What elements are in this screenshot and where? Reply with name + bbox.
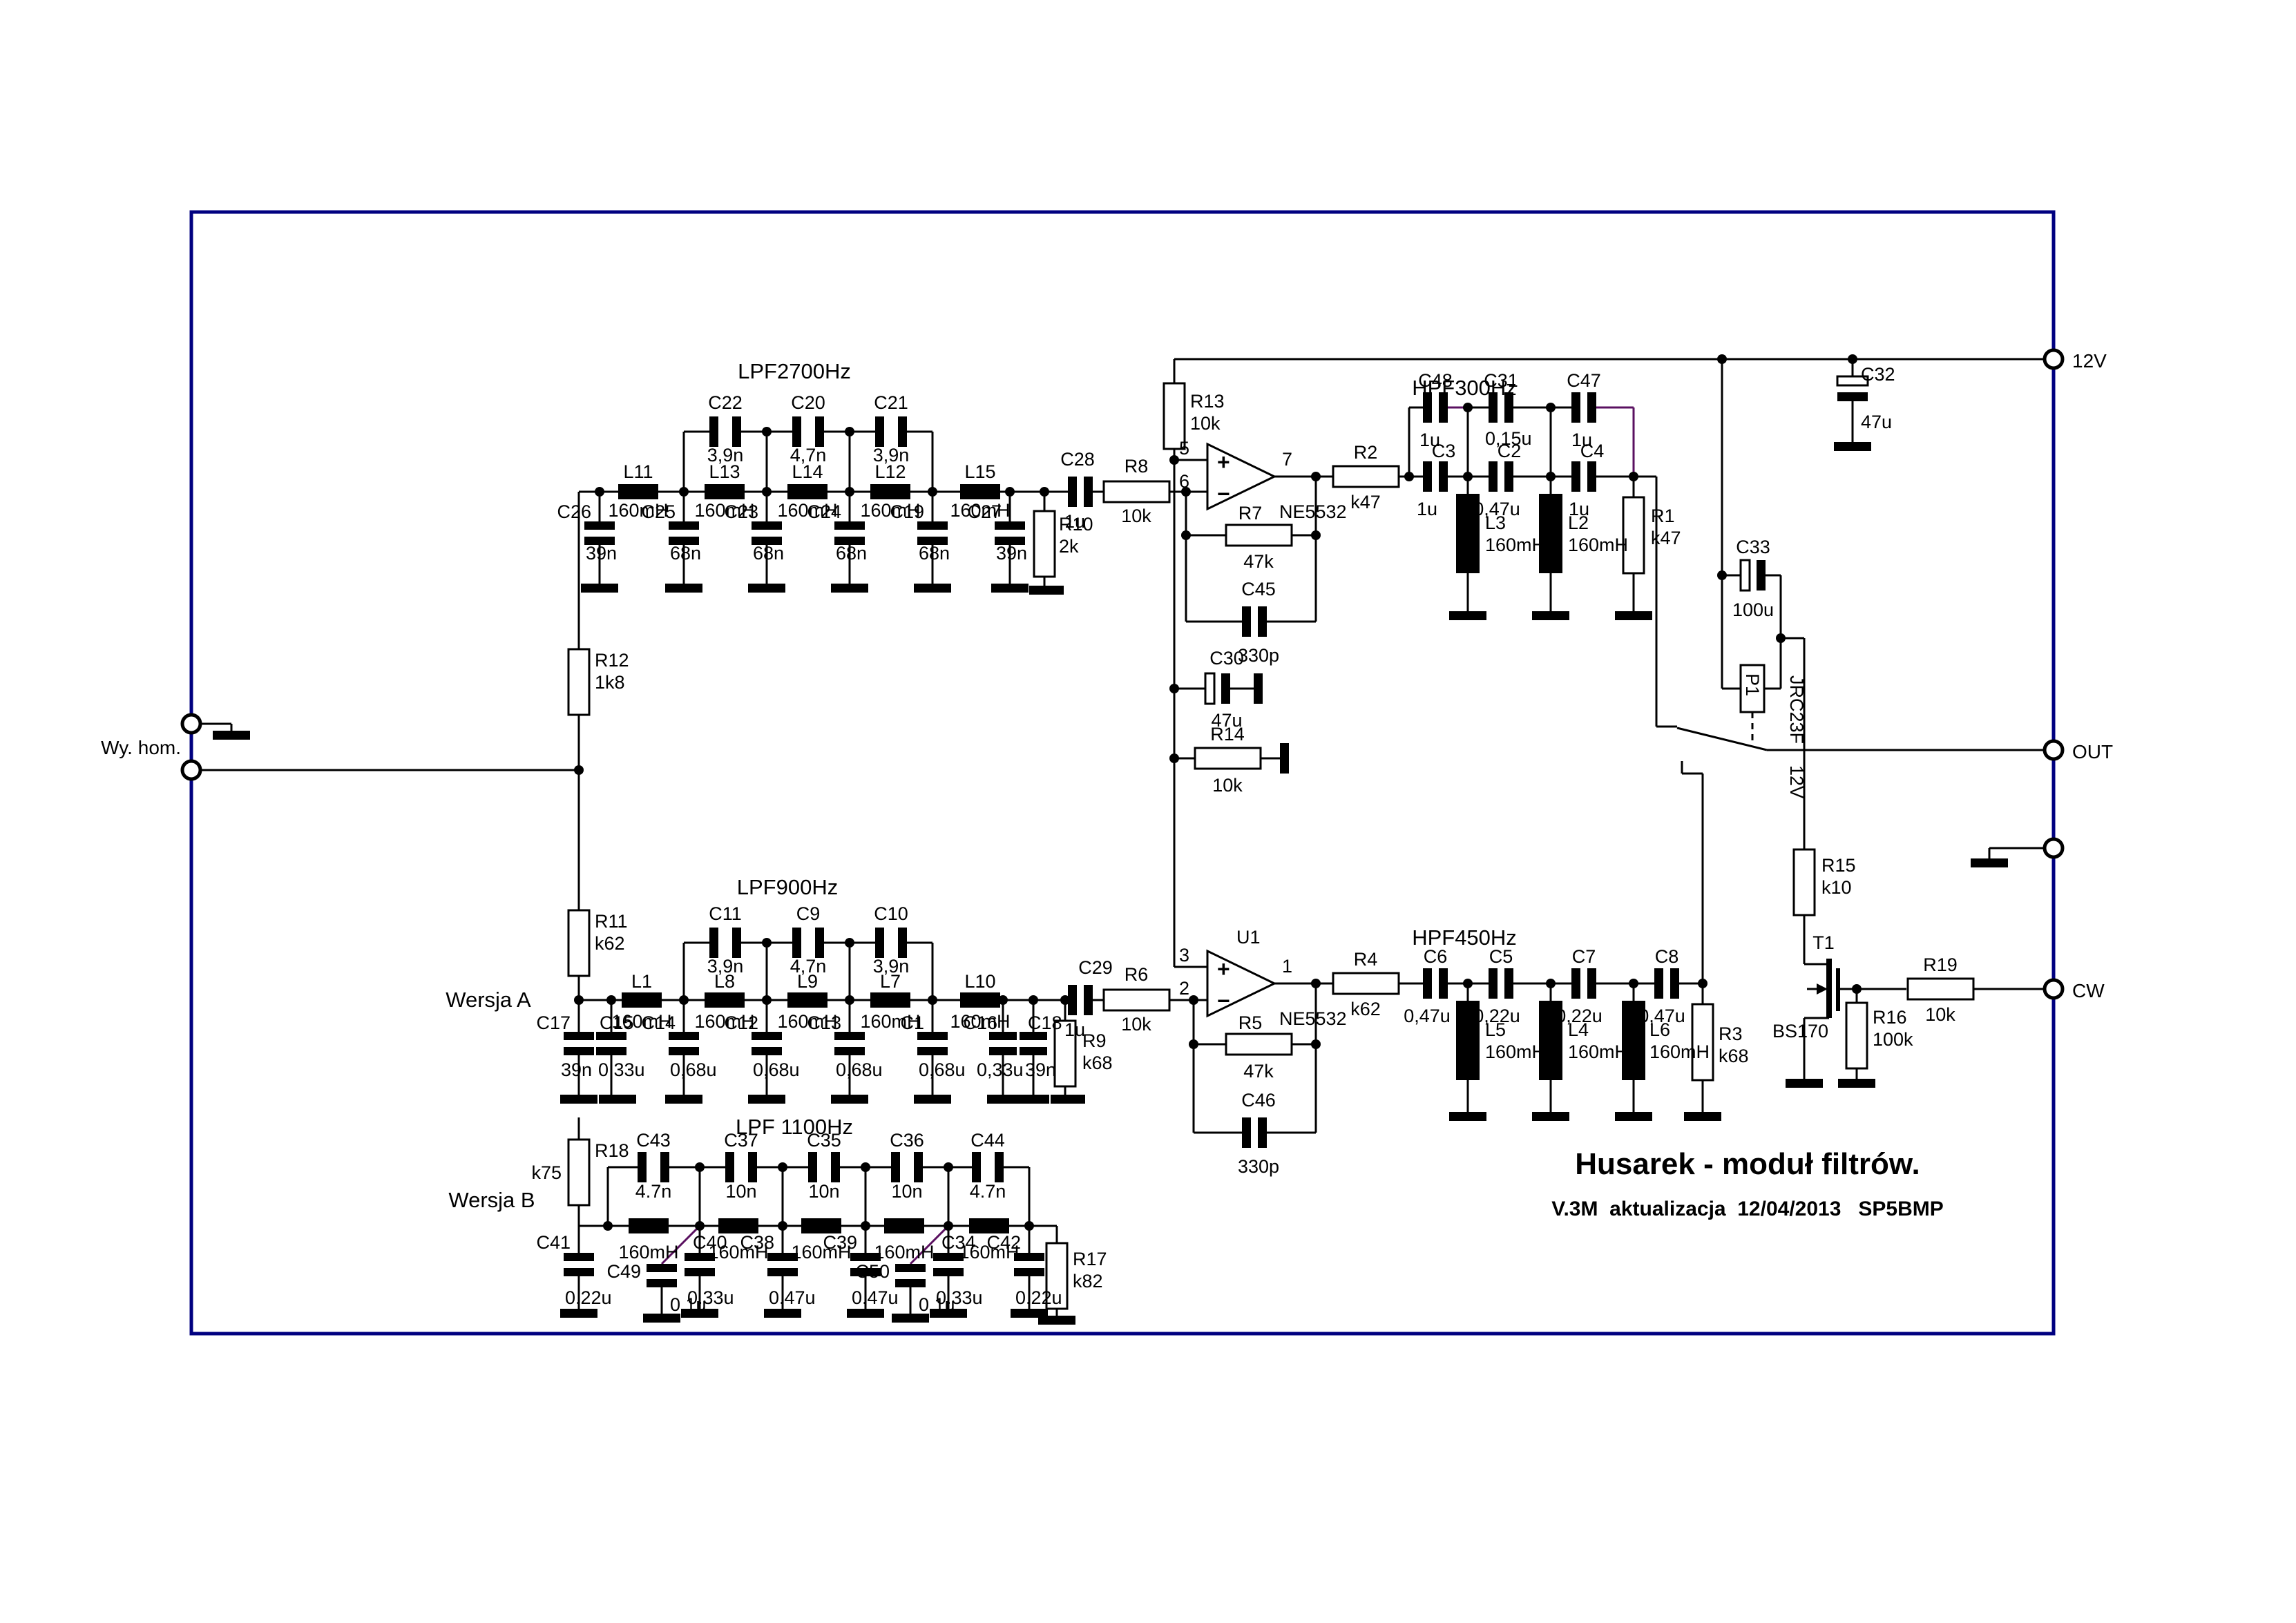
inductor-L14 bbox=[787, 484, 827, 499]
ref-C47: C47 bbox=[1567, 370, 1601, 391]
ref-R18: R18 bbox=[595, 1140, 629, 1161]
capacitor-C2 bbox=[1489, 461, 1513, 492]
val-C26: 39n bbox=[586, 543, 617, 564]
val-C32: 47u bbox=[1861, 412, 1892, 432]
val-R3: k68 bbox=[1719, 1046, 1749, 1066]
val-R17: k82 bbox=[1073, 1271, 1103, 1291]
ref-P1: P1 bbox=[1742, 673, 1763, 696]
ground-input bbox=[213, 731, 250, 740]
relay-voltage: 12V bbox=[1786, 765, 1807, 798]
ref-C4: C4 bbox=[1580, 441, 1605, 461]
capacitor-C3 bbox=[1423, 461, 1448, 492]
val-L4: 160mH bbox=[1568, 1041, 1628, 1062]
val-C33: 100u bbox=[1732, 599, 1774, 620]
ref-C27: C27 bbox=[967, 501, 1002, 522]
ref-L14: L14 bbox=[792, 461, 823, 482]
terminal-cw bbox=[2045, 980, 2063, 998]
ref-L15: L15 bbox=[964, 461, 995, 482]
ref-C16: C16 bbox=[963, 1012, 997, 1033]
resistor-R15 bbox=[1794, 849, 1815, 915]
ref-R2: R2 bbox=[1354, 442, 1378, 463]
ref-C39: C39 bbox=[823, 1232, 857, 1253]
ref-C48: C48 bbox=[1418, 370, 1453, 391]
pin-3: 3 bbox=[1179, 945, 1189, 966]
label-wersja-a: Wersja A bbox=[446, 988, 531, 1012]
part-relay: JRC23F bbox=[1786, 675, 1807, 744]
inductor-L12 bbox=[870, 484, 910, 499]
capacitor-C45 bbox=[1242, 606, 1251, 637]
ref-T1: T1 bbox=[1812, 932, 1835, 953]
val-R8: 10k bbox=[1121, 506, 1151, 526]
ref-C26: C26 bbox=[557, 501, 591, 522]
opamp2-minus: − bbox=[1217, 988, 1230, 1013]
ref-C7: C7 bbox=[1572, 946, 1596, 967]
val-L3: 160mH bbox=[1485, 535, 1545, 555]
val-C28: 1u bbox=[1064, 511, 1085, 532]
label-wersja-b: Wersja B bbox=[448, 1188, 535, 1212]
val-C24: 68n bbox=[836, 543, 867, 564]
ref-C21: C21 bbox=[874, 392, 908, 413]
resistor-R12 bbox=[568, 649, 589, 715]
ref-C34: C34 bbox=[941, 1232, 976, 1253]
ref-C43: C43 bbox=[636, 1130, 671, 1151]
ref-R3: R3 bbox=[1719, 1024, 1743, 1044]
ref-C50: C50 bbox=[855, 1261, 890, 1282]
val-R6: 10k bbox=[1121, 1014, 1151, 1035]
ref-C18: C18 bbox=[1028, 1012, 1062, 1033]
ref-C2: C2 bbox=[1498, 441, 1522, 461]
ref-C33: C33 bbox=[1736, 537, 1770, 557]
resistor-R6 bbox=[1104, 990, 1169, 1010]
resistor-R7 bbox=[1226, 525, 1292, 546]
ref-C31: C31 bbox=[1484, 370, 1518, 391]
val-C13: 0,68u bbox=[836, 1059, 883, 1080]
pin-6: 6 bbox=[1179, 471, 1189, 492]
capacitor-C20 bbox=[792, 416, 824, 447]
val-R14: 10k bbox=[1212, 775, 1243, 796]
resistor-R5 bbox=[1226, 1034, 1292, 1055]
ref-C35: C35 bbox=[807, 1130, 841, 1151]
inductor-L15 bbox=[960, 484, 1000, 499]
capacitor-C37 bbox=[725, 1152, 757, 1182]
inductor-b2 bbox=[718, 1218, 758, 1233]
ref-L7: L7 bbox=[880, 971, 901, 992]
ref-R12: R12 bbox=[595, 650, 629, 671]
val-R7: 47k bbox=[1243, 551, 1274, 572]
val-C43: 4.7n bbox=[635, 1181, 672, 1202]
val-R15: k10 bbox=[1821, 877, 1852, 898]
ref-C44: C44 bbox=[970, 1130, 1005, 1151]
ref-C15: C15 bbox=[600, 1012, 634, 1033]
ref-L4: L4 bbox=[1568, 1019, 1589, 1040]
val-C37: 10n bbox=[725, 1181, 756, 1202]
inductor-L9 bbox=[787, 992, 827, 1008]
capacitor-C33 bbox=[1741, 560, 1750, 590]
ref-C6: C6 bbox=[1424, 946, 1448, 967]
section-title-lpf900: LPF900Hz bbox=[737, 875, 838, 899]
capacitor-C5 bbox=[1489, 968, 1513, 999]
capacitor-C9 bbox=[792, 928, 824, 958]
resistor-R2 bbox=[1333, 466, 1399, 487]
val-Lb1: 160mH bbox=[618, 1242, 678, 1262]
val-C49: 0.1u bbox=[670, 1294, 707, 1315]
ref-R9: R9 bbox=[1082, 1030, 1107, 1051]
inductor-L13 bbox=[705, 484, 745, 499]
part-opamp2: NE5532 bbox=[1279, 1008, 1347, 1029]
pin-7: 7 bbox=[1282, 449, 1292, 470]
val-R18: k75 bbox=[531, 1162, 562, 1183]
val-R16: 100k bbox=[1873, 1029, 1913, 1050]
ref-C25: C25 bbox=[641, 501, 676, 522]
inductor-b5 bbox=[969, 1218, 1009, 1233]
opamp1-minus: − bbox=[1217, 481, 1230, 506]
ref-R7: R7 bbox=[1238, 503, 1263, 524]
val-R4: k62 bbox=[1350, 999, 1381, 1019]
inductor-L8 bbox=[705, 992, 745, 1008]
ground-out bbox=[1971, 858, 2008, 867]
ref-R15: R15 bbox=[1821, 855, 1856, 876]
ref-R16: R16 bbox=[1873, 1007, 1907, 1028]
val-R19: 10k bbox=[1925, 1004, 1955, 1025]
ref-C23: C23 bbox=[724, 501, 758, 522]
page-title: Husarek - moduł filtrów. bbox=[1575, 1147, 1920, 1181]
ref-C32: C32 bbox=[1861, 364, 1895, 385]
val-C41: 0.22u bbox=[565, 1287, 612, 1308]
terminal-input-gnd bbox=[182, 715, 200, 733]
val-Lb4: 160mH bbox=[874, 1242, 934, 1262]
ref-C29: C29 bbox=[1078, 957, 1113, 978]
page-subtitle: V.3M aktualizacja 12/04/2013 SP5BMP bbox=[1551, 1198, 1944, 1220]
val-C16: 0,33u bbox=[977, 1059, 1024, 1080]
ref-C17: C17 bbox=[536, 1012, 571, 1033]
capacitor-C10 bbox=[875, 928, 907, 958]
val-C39: 0.47u bbox=[852, 1287, 899, 1308]
val-C1: 0,68u bbox=[919, 1059, 966, 1080]
capacitor-C7 bbox=[1571, 968, 1596, 999]
capacitor-C4 bbox=[1571, 461, 1596, 492]
val-R9: k68 bbox=[1082, 1053, 1113, 1073]
terminal-gnd bbox=[2045, 839, 2063, 857]
ref-R19: R19 bbox=[1923, 954, 1958, 975]
ref-C41: C41 bbox=[536, 1232, 571, 1253]
inductor-b3 bbox=[801, 1218, 841, 1233]
ref-C12: C12 bbox=[724, 1012, 758, 1033]
val-C23: 68n bbox=[753, 543, 784, 564]
val-C25: 68n bbox=[670, 543, 701, 564]
val-R12: 1k8 bbox=[595, 672, 625, 693]
ref-L10: L10 bbox=[964, 971, 995, 992]
ref-C14: C14 bbox=[641, 1012, 676, 1033]
ref-C49: C49 bbox=[606, 1261, 641, 1282]
val-C38: 0.47u bbox=[769, 1287, 816, 1308]
opamp1-plus: + bbox=[1217, 450, 1230, 474]
inductor-L7 bbox=[870, 992, 910, 1008]
val-C29: 1u bbox=[1064, 1019, 1085, 1040]
ref-C1: C1 bbox=[900, 1012, 924, 1033]
capacitor-C36 bbox=[891, 1152, 923, 1182]
ref-L9: L9 bbox=[797, 971, 818, 992]
val-C3: 1u bbox=[1417, 499, 1437, 519]
val-C42: 0.22u bbox=[1015, 1287, 1062, 1308]
ref-L6: L6 bbox=[1649, 1019, 1670, 1040]
ref-C24: C24 bbox=[807, 501, 841, 522]
capacitor-C28 bbox=[1068, 477, 1093, 507]
ref-R6: R6 bbox=[1125, 964, 1149, 985]
inductor-L11 bbox=[618, 484, 658, 499]
val-C12: 0,68u bbox=[753, 1059, 800, 1080]
opamp2-plus: + bbox=[1217, 957, 1230, 981]
ref-R8: R8 bbox=[1125, 456, 1149, 477]
ref-C5: C5 bbox=[1489, 946, 1513, 967]
section-title-lpf2700: LPF2700Hz bbox=[738, 359, 851, 383]
capacitor-C8 bbox=[1654, 968, 1679, 999]
ref-C22: C22 bbox=[708, 392, 743, 413]
ref-L5: L5 bbox=[1485, 1019, 1506, 1040]
ref-C20: C20 bbox=[791, 392, 825, 413]
ref-L1: L1 bbox=[631, 971, 652, 992]
ref-C3: C3 bbox=[1432, 441, 1456, 461]
val-C17: 39n bbox=[561, 1059, 592, 1080]
ref-C46: C46 bbox=[1241, 1090, 1276, 1111]
ref-R5: R5 bbox=[1238, 1012, 1263, 1033]
val-C15: 0,33u bbox=[598, 1059, 645, 1080]
val-R11: k62 bbox=[595, 933, 625, 954]
ref-C13: C13 bbox=[807, 1012, 841, 1033]
val-L6: 160mH bbox=[1649, 1041, 1710, 1062]
ref-R4: R4 bbox=[1354, 949, 1378, 970]
ref-C28: C28 bbox=[1060, 449, 1095, 470]
inductor-L1 bbox=[622, 992, 662, 1008]
ref-C38: C38 bbox=[740, 1232, 774, 1253]
pin-1: 1 bbox=[1282, 956, 1292, 977]
ref-C9: C9 bbox=[796, 903, 821, 924]
ref-R11: R11 bbox=[595, 911, 628, 932]
capacitor-C22 bbox=[709, 416, 741, 447]
inductor-b1 bbox=[629, 1218, 669, 1233]
ref-R14: R14 bbox=[1210, 724, 1245, 745]
ref-R1: R1 bbox=[1651, 506, 1675, 526]
val-R1: k47 bbox=[1651, 528, 1681, 548]
val-R2: k47 bbox=[1350, 492, 1381, 512]
val-L2: 160mH bbox=[1568, 535, 1628, 555]
schematic-page: LPF2700Hz LPF900Hz LPF 1100Hz HPF300Hz H… bbox=[0, 0, 2296, 1623]
capacitor-C6 bbox=[1423, 968, 1448, 999]
ref-C11: C11 bbox=[709, 903, 742, 924]
val-C45: 330p bbox=[1238, 645, 1279, 666]
label-cw: CW bbox=[2072, 980, 2105, 1001]
val-C14: 0,68u bbox=[670, 1059, 717, 1080]
val-C36: 10n bbox=[891, 1181, 922, 1202]
val-C18: 39n bbox=[1025, 1059, 1056, 1080]
ref-L11: L11 bbox=[623, 461, 653, 482]
ref-L3: L3 bbox=[1485, 512, 1506, 533]
val-C46: 330p bbox=[1238, 1156, 1279, 1177]
ref-C10: C10 bbox=[874, 903, 908, 924]
val-R13: 10k bbox=[1190, 413, 1221, 434]
resistor-R18 bbox=[568, 1140, 589, 1205]
ref-R13: R13 bbox=[1190, 391, 1225, 412]
terminal-12v bbox=[2045, 350, 2063, 368]
capacitor-C21 bbox=[875, 416, 907, 447]
val-C19: 68n bbox=[919, 543, 950, 564]
val-L5: 160mH bbox=[1485, 1041, 1545, 1062]
ref-C37: C37 bbox=[724, 1130, 758, 1151]
ref-C36: C36 bbox=[890, 1130, 924, 1151]
label-12v: 12V bbox=[2072, 350, 2107, 372]
resistor-R8 bbox=[1104, 481, 1169, 502]
inductor-L10 bbox=[960, 992, 1000, 1008]
capacitor-C29 bbox=[1068, 985, 1093, 1015]
pin-5: 5 bbox=[1179, 438, 1189, 459]
val-C35: 10n bbox=[808, 1181, 839, 1202]
inductor-b4 bbox=[884, 1218, 924, 1233]
ref-C42: C42 bbox=[986, 1232, 1021, 1253]
val-C6: 0,47u bbox=[1404, 1006, 1451, 1026]
ref-U1: U1 bbox=[1236, 927, 1261, 948]
resistor-R19 bbox=[1908, 979, 1973, 999]
ref-R17: R17 bbox=[1073, 1249, 1107, 1269]
ref-L13: L13 bbox=[709, 461, 740, 482]
pin-2: 2 bbox=[1179, 978, 1189, 999]
ref-C19: C19 bbox=[890, 501, 924, 522]
part-T1: BS170 bbox=[1772, 1021, 1828, 1041]
capacitor-C35 bbox=[808, 1152, 840, 1182]
terminal-out bbox=[2045, 741, 2063, 759]
ref-C40: C40 bbox=[693, 1232, 727, 1253]
val-R10: 2k bbox=[1059, 536, 1079, 557]
val-C50: 0.1u bbox=[919, 1294, 955, 1315]
resistor-R4 bbox=[1333, 973, 1399, 994]
ref-C45: C45 bbox=[1241, 579, 1276, 599]
capacitor-C43 bbox=[638, 1152, 669, 1182]
val-C27: 39n bbox=[996, 543, 1027, 564]
ref-L2: L2 bbox=[1568, 512, 1589, 533]
ref-L12: L12 bbox=[874, 461, 906, 482]
label-out: OUT bbox=[2072, 741, 2113, 762]
capacitor-C11 bbox=[709, 928, 741, 958]
capacitor-C47 bbox=[1571, 392, 1596, 423]
capacitor-C44 bbox=[972, 1152, 1004, 1182]
capacitor-C46 bbox=[1242, 1117, 1251, 1148]
terminal-input-signal bbox=[182, 761, 200, 779]
resistor-R11 bbox=[568, 910, 589, 976]
label-wy-hom: Wy. hom. bbox=[101, 737, 181, 758]
ref-C8: C8 bbox=[1655, 946, 1679, 967]
val-C44: 4.7n bbox=[970, 1181, 1006, 1202]
part-opamp1: NE5532 bbox=[1279, 501, 1347, 522]
ref-L8: L8 bbox=[714, 971, 735, 992]
val-R5: 47k bbox=[1243, 1061, 1274, 1082]
